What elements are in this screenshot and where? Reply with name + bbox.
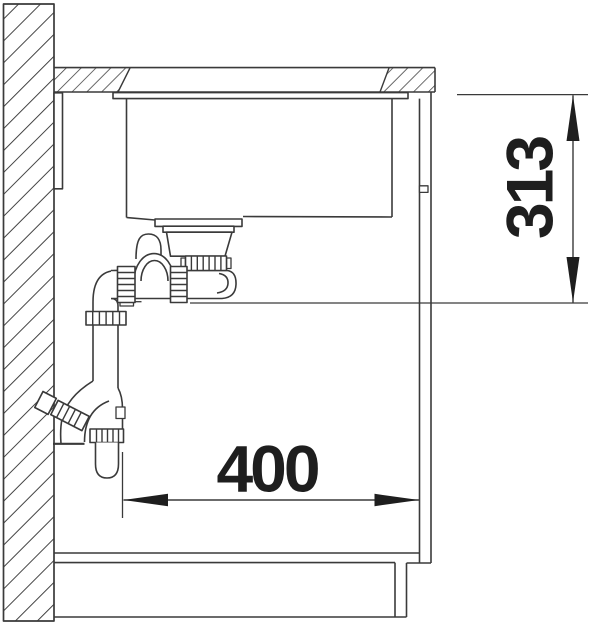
- arrow-left-icon: [124, 494, 169, 506]
- collar-trap-cup: [90, 429, 124, 443]
- cup-nut: [186, 256, 227, 271]
- dimension-vertical-313: [567, 95, 580, 302]
- wall-batten: [54, 93, 63, 189]
- trap-cup: [96, 443, 119, 479]
- sink-section-drawing: 400 313: [0, 0, 600, 625]
- dimension-vertical-label: 313: [493, 137, 567, 239]
- collar-vertical-pipe: [86, 312, 126, 326]
- strainer-flange-wide: [155, 219, 242, 226]
- sink-rim: [113, 93, 408, 99]
- linework: 400 313: [4, 4, 589, 621]
- collar-left: [118, 267, 136, 303]
- strainer-flange-narrow: [163, 226, 234, 232]
- technical-drawing-page: 400 313: [0, 0, 600, 625]
- side-panel-joint: [420, 186, 429, 193]
- sink-bowl: [113, 93, 408, 220]
- drain-siphon-assembly: [35, 219, 242, 478]
- countertop-section: [54, 68, 435, 92]
- bowl-bottom-left: [127, 218, 156, 221]
- arrow-right-icon: [375, 494, 420, 506]
- collar-right: [171, 267, 188, 303]
- arrow-up-icon: [567, 95, 580, 141]
- strainer-cup: [167, 232, 233, 256]
- pipe-clip-lower: [116, 407, 125, 419]
- bowl-bottom-right: [243, 217, 392, 218]
- arrow-down-icon: [567, 257, 580, 303]
- cabinet-carcass: [54, 92, 431, 617]
- wall-section: [4, 4, 55, 621]
- wall-hatch: [4, 4, 55, 621]
- countertop-hatch-left: [54, 68, 130, 92]
- dimension-horizontal-label: 400: [216, 432, 317, 506]
